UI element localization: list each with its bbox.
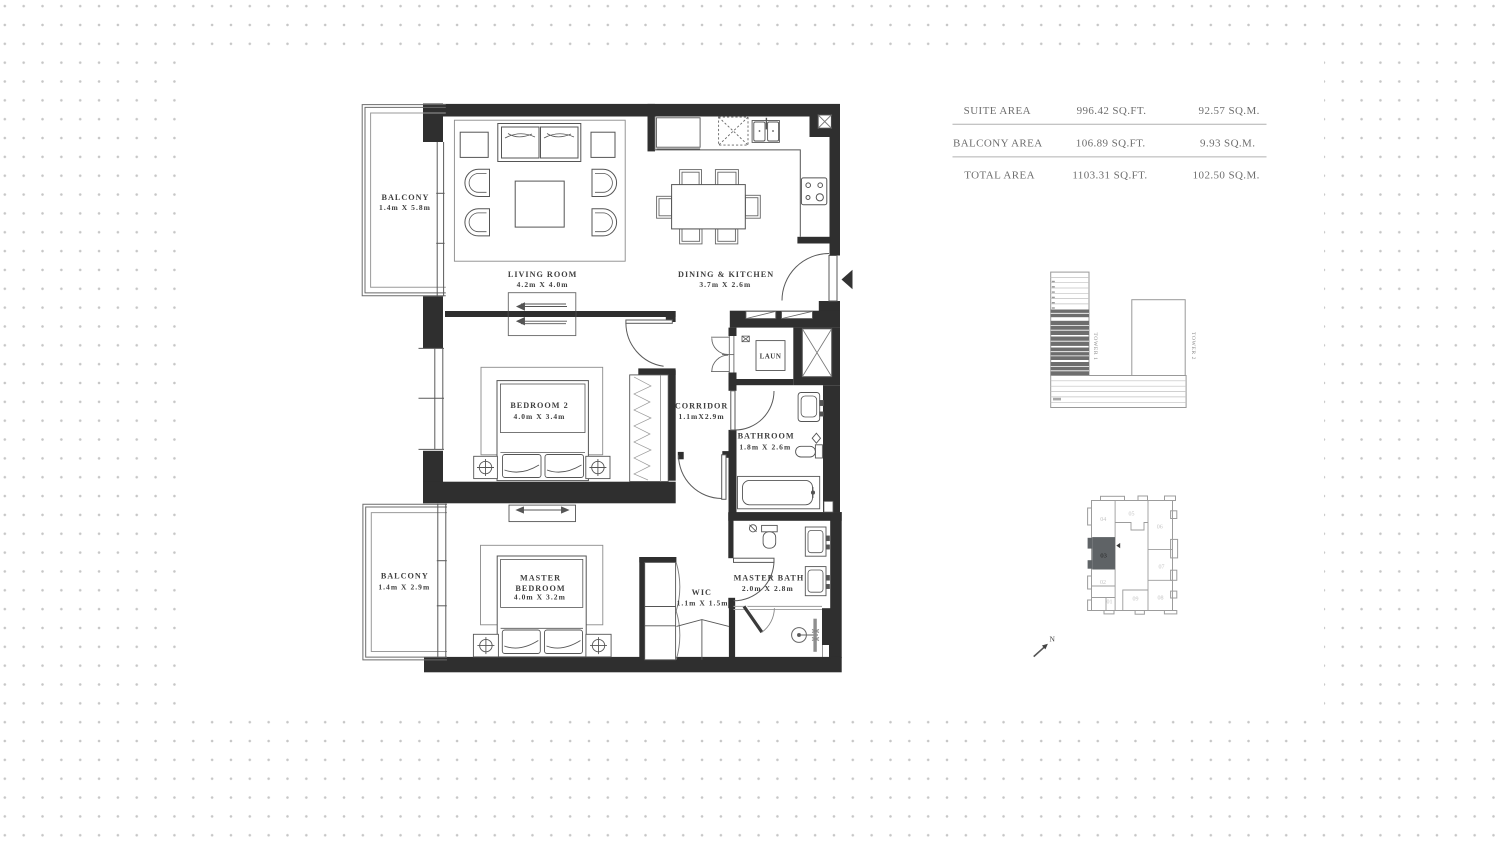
svg-text:TOTAL AREA: TOTAL AREA <box>964 170 1035 182</box>
svg-text:1.8m X 2.6m: 1.8m X 2.6m <box>739 442 791 451</box>
svg-text:MASTER BATH: MASTER BATH <box>734 574 805 583</box>
svg-text:BALCONY: BALCONY <box>381 572 429 581</box>
svg-text:2.0m X 2.8m: 2.0m X 2.8m <box>742 584 794 593</box>
svg-text:05: 05 <box>1129 512 1135 518</box>
svg-text:BEDROOM 2: BEDROOM 2 <box>510 401 568 410</box>
svg-text:08: 08 <box>1158 596 1164 602</box>
svg-text:03: 03 <box>1100 553 1106 560</box>
svg-text:1.1mX2.9m: 1.1mX2.9m <box>679 412 725 421</box>
svg-text:4.0m X 3.2m: 4.0m X 3.2m <box>514 593 566 602</box>
svg-text:92.57 SQ.M.: 92.57 SQ.M. <box>1199 105 1260 117</box>
svg-text:102.50 SQ.M.: 102.50 SQ.M. <box>1193 170 1260 182</box>
svg-text:1.4m X 5.8m: 1.4m X 5.8m <box>379 203 431 212</box>
svg-text:LIVING ROOM: LIVING ROOM <box>508 270 577 279</box>
svg-text:TOWER 1: TOWER 1 <box>1092 332 1098 360</box>
svg-text:MASTER: MASTER <box>520 573 561 582</box>
svg-text:04: 04 <box>1100 517 1106 523</box>
svg-text:01: 01 <box>1107 599 1113 605</box>
svg-text:BATHROOM: BATHROOM <box>738 432 795 441</box>
svg-text:1103.31 SQ.FT.: 1103.31 SQ.FT. <box>1072 170 1147 182</box>
svg-text:CORRIDOR: CORRIDOR <box>675 402 729 411</box>
svg-text:TOWER 2: TOWER 2 <box>1190 332 1196 360</box>
svg-text:SUITE AREA: SUITE AREA <box>964 105 1031 117</box>
svg-text:WIC: WIC <box>692 588 712 597</box>
svg-text:06: 06 <box>1157 525 1163 531</box>
svg-text:996.42 SQ.FT.: 996.42 SQ.FT. <box>1077 105 1147 117</box>
svg-text:1.4m X 2.9m: 1.4m X 2.9m <box>378 582 430 591</box>
svg-text:4.0m X 3.4m: 4.0m X 3.4m <box>514 412 566 421</box>
svg-text:07: 07 <box>1159 565 1165 571</box>
svg-text:DINING & KITCHEN: DINING & KITCHEN <box>678 270 774 279</box>
svg-text:LAUN: LAUN <box>760 353 782 361</box>
svg-text:09: 09 <box>1133 596 1139 602</box>
svg-text:3.7m X 2.6m: 3.7m X 2.6m <box>699 280 751 289</box>
svg-text:9.93 SQ.M.: 9.93 SQ.M. <box>1200 138 1255 150</box>
svg-text:BALCONY AREA: BALCONY AREA <box>953 138 1043 150</box>
svg-text:1.1m X 1.5m: 1.1m X 1.5m <box>677 598 729 607</box>
svg-text:4.2m X 4.0m: 4.2m X 4.0m <box>517 280 569 289</box>
svg-text:02: 02 <box>1100 580 1106 586</box>
svg-text:106.89 SQ.FT.: 106.89 SQ.FT. <box>1076 138 1146 150</box>
svg-text:BALCONY: BALCONY <box>382 193 430 202</box>
svg-text:N: N <box>1050 635 1056 644</box>
